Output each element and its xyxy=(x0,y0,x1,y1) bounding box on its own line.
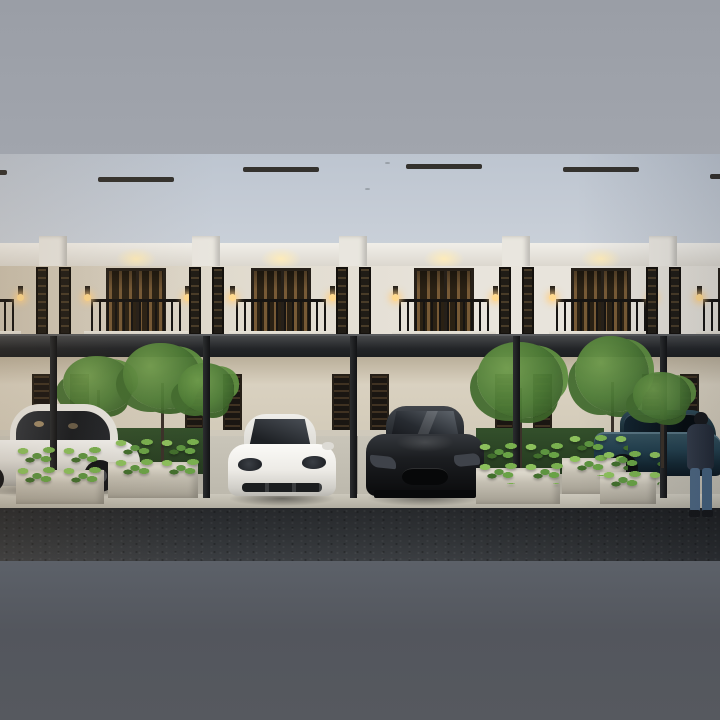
white-sports-coupe xyxy=(228,414,336,506)
soffit-downlight-glow xyxy=(581,248,621,266)
plant-row xyxy=(474,440,564,484)
narrow-window xyxy=(359,267,371,335)
bottom-letterbox-bar xyxy=(0,561,720,720)
narrow-window xyxy=(59,267,71,335)
plant-row xyxy=(598,448,660,488)
roof-ridge-cap xyxy=(563,167,639,172)
plant-row xyxy=(12,444,108,484)
tree-foliage xyxy=(477,342,563,418)
wall-sconce xyxy=(330,286,335,295)
coupe-headlight-right xyxy=(302,456,326,469)
narrow-window xyxy=(522,267,534,335)
sportscar-splitter xyxy=(374,490,476,498)
architectural-rendering-image xyxy=(0,0,720,720)
narrow-window xyxy=(189,267,201,335)
plant-row xyxy=(110,436,200,476)
roof-ridge-cap xyxy=(98,177,174,182)
bird xyxy=(385,162,390,164)
wall-sconce xyxy=(493,286,498,295)
coupe-mirror xyxy=(322,442,334,450)
sportscar-grille xyxy=(402,468,448,485)
soffit-downlight-glow xyxy=(261,248,301,266)
sedan-windows xyxy=(16,411,110,443)
bird xyxy=(365,188,370,190)
wall-sconce xyxy=(85,286,90,295)
narrow-window xyxy=(336,267,348,335)
soffit-downlight-glow xyxy=(424,248,464,266)
narrow-window xyxy=(499,267,511,335)
wall-sconce xyxy=(18,286,23,295)
soffit-downlight-glow xyxy=(116,248,156,266)
coupe-headlight-left xyxy=(238,458,262,471)
roof-ridge-cap xyxy=(243,167,319,172)
narrow-window xyxy=(646,267,658,335)
roof-ridge-cap xyxy=(0,170,7,175)
roof-ridge-cap xyxy=(710,174,720,179)
canopy-post xyxy=(203,336,210,498)
roof-ridge-cap xyxy=(406,164,482,169)
person-jacket xyxy=(687,424,714,470)
person-leg-left xyxy=(690,468,700,512)
narrow-window xyxy=(36,267,48,335)
wall-sconce xyxy=(550,286,555,295)
person-shoe-left xyxy=(689,510,700,517)
asphalt-road xyxy=(0,508,720,561)
sportscar-hood-highlight xyxy=(396,436,454,452)
person-shoe-right xyxy=(702,510,713,517)
top-letterbox-bar xyxy=(0,0,720,154)
wall-sconce xyxy=(230,286,235,295)
narrow-window xyxy=(669,267,681,335)
narrow-window xyxy=(212,267,224,335)
coupe-roof xyxy=(244,414,316,448)
canopy-post xyxy=(350,336,357,498)
black-sports-car xyxy=(366,406,484,506)
photo-area xyxy=(0,154,720,561)
coupe-front-intake xyxy=(242,483,322,492)
person-leg-right xyxy=(702,468,712,512)
wall-sconce xyxy=(393,286,398,295)
man-standing xyxy=(684,412,718,522)
wall-sconce xyxy=(697,286,702,295)
tree-foliage xyxy=(633,372,691,420)
